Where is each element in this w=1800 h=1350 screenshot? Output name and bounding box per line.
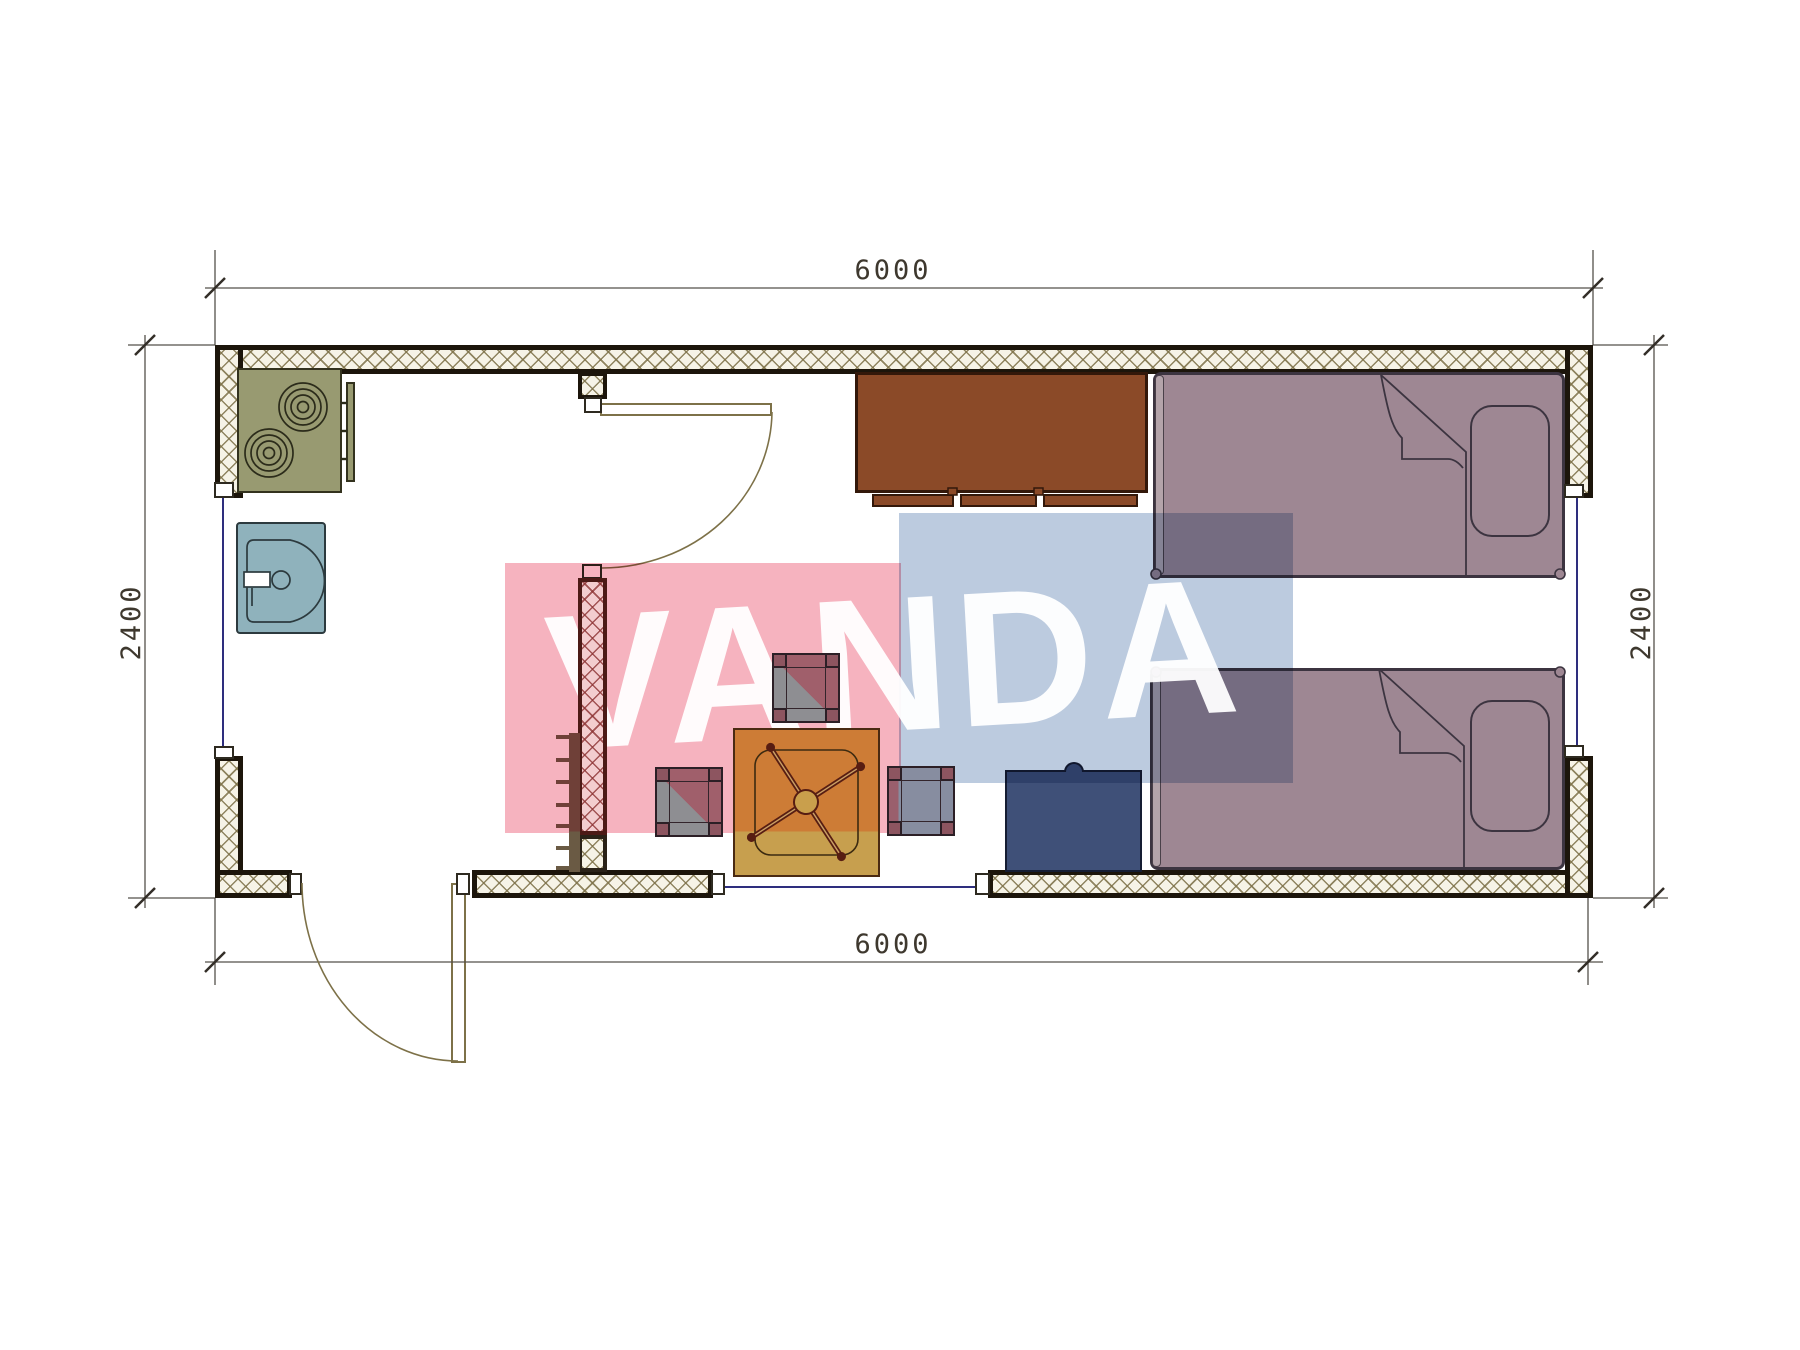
partition-wall-lower xyxy=(578,835,607,872)
table-linework xyxy=(0,0,1800,1350)
partition-wall-upper xyxy=(578,578,607,835)
coat-rack-icon xyxy=(569,733,580,872)
stool-icon xyxy=(655,767,723,837)
foreground-layer xyxy=(0,0,1800,1350)
stool-icon xyxy=(772,653,840,723)
stool-icon xyxy=(887,766,955,836)
coat-rack-hooks xyxy=(556,737,569,868)
floor-plan-canvas: 6000 6000 2400 2400 xyxy=(0,0,1800,1350)
table-icon xyxy=(733,728,880,877)
